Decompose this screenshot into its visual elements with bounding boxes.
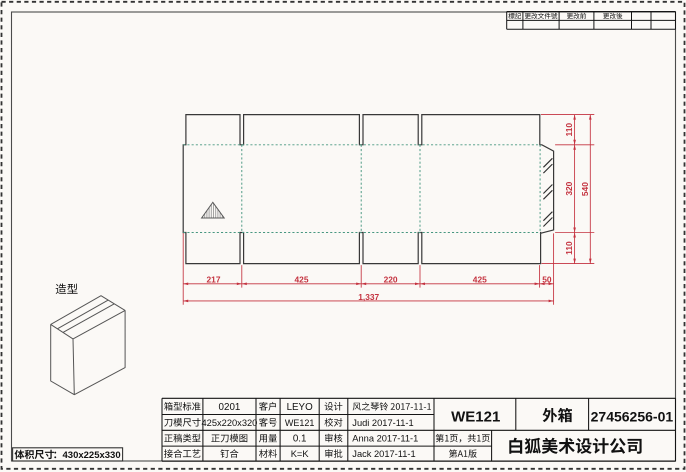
svg-text:Jack 2017-11-1: Jack 2017-11-1 <box>352 449 415 459</box>
svg-text:Anna 2017-11-1: Anna 2017-11-1 <box>352 434 418 444</box>
svg-text:110: 110 <box>564 123 574 137</box>
svg-text:220: 220 <box>384 275 398 285</box>
svg-text:27456256-01: 27456256-01 <box>591 408 674 424</box>
svg-text:110: 110 <box>564 241 574 255</box>
svg-text:50: 50 <box>542 275 552 285</box>
svg-text:1,337: 1,337 <box>358 292 379 302</box>
svg-text:Judi 2017-11-1: Judi 2017-11-1 <box>352 418 413 428</box>
svg-text:425: 425 <box>295 275 309 285</box>
svg-text:0.1: 0.1 <box>293 434 307 445</box>
svg-text:425: 425 <box>473 275 487 285</box>
svg-text:LEYO: LEYO <box>287 402 314 413</box>
svg-text:430x225x330: 430x225x330 <box>63 450 121 461</box>
svg-text:320: 320 <box>564 181 574 195</box>
svg-text:540: 540 <box>580 182 590 196</box>
svg-text:217: 217 <box>207 275 221 285</box>
svg-text:WE121: WE121 <box>451 408 500 425</box>
svg-text:425x220x320: 425x220x320 <box>202 418 258 428</box>
svg-text:0201: 0201 <box>219 402 241 413</box>
svg-text:WE121: WE121 <box>285 418 315 428</box>
svg-text:K=K: K=K <box>291 449 310 459</box>
